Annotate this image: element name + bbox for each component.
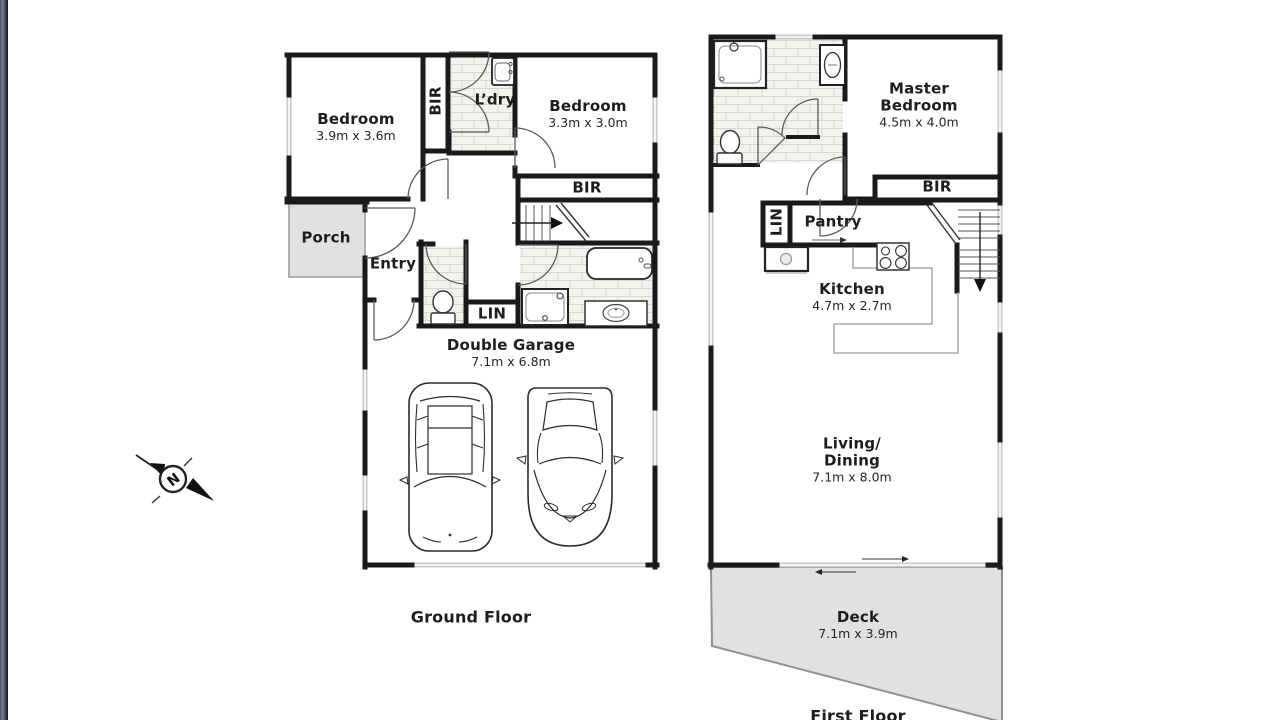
- bathtub-icon: [587, 248, 652, 279]
- bedroom2-name: Bedroom: [548, 98, 627, 115]
- master-bedroom-label: Master Bedroom 4.5m x 4.0m: [879, 81, 958, 130]
- living-size: 7.1m x 8.0m: [812, 470, 891, 485]
- first-bir-label: BIR: [922, 179, 951, 196]
- garage-name: Double Garage: [447, 337, 575, 354]
- entry-label: Entry: [370, 256, 416, 273]
- bedroom2-size: 3.3m x 3.0m: [548, 115, 627, 130]
- bedroom1-size: 3.9m x 3.6m: [316, 128, 395, 143]
- shower-icon-first: [714, 41, 766, 88]
- master-size: 4.5m x 4.0m: [879, 115, 958, 130]
- bedroom2-bir-label: BIR: [572, 180, 601, 197]
- kitchen-label: Kitchen 4.7m x 2.7m: [812, 281, 891, 313]
- porch-label: Porch: [301, 230, 350, 247]
- basin-icon-first: [820, 45, 845, 85]
- laundry-label: L’dry: [475, 92, 516, 109]
- first-floor-title: First Floor: [810, 708, 906, 720]
- first-stairs: [927, 203, 1000, 292]
- bedroom1-label: Bedroom 3.9m x 3.6m: [316, 111, 395, 143]
- vanity-basin-icon-ground: [585, 301, 647, 326]
- deck-label: Deck 7.1m x 3.9m: [818, 609, 897, 641]
- first-linen-label: LIN: [769, 208, 786, 236]
- shower-icon-ground: [522, 289, 568, 325]
- kitchen-name: Kitchen: [812, 281, 891, 298]
- deck-size: 7.1m x 3.9m: [818, 626, 897, 641]
- deck-name: Deck: [818, 609, 897, 626]
- car-top-view-wagon-icon: [400, 383, 500, 551]
- bedroom1-name: Bedroom: [316, 111, 395, 128]
- bedroom2-label: Bedroom 3.3m x 3.0m: [548, 98, 627, 130]
- pantry-label: Pantry: [805, 214, 862, 231]
- master-name-line1: Master: [879, 81, 958, 98]
- ground-floor-title: Ground Floor: [411, 609, 532, 626]
- master-name-line2: Bedroom: [879, 98, 958, 115]
- toilet-icon-ground: [431, 291, 455, 324]
- car-top-view-sedan-icon: [517, 388, 623, 546]
- laundry-tub-icon: [492, 58, 514, 85]
- garage-size: 7.1m x 6.8m: [447, 354, 575, 369]
- deck-area: [711, 567, 1002, 720]
- living-name-line2: Dining: [812, 453, 891, 470]
- garage-label: Double Garage 7.1m x 6.8m: [447, 337, 575, 369]
- ground-linen-label: LIN: [478, 306, 506, 323]
- floor-plan-graphics: N: [0, 0, 1280, 720]
- floor-plan-page: N Bedroom 3.9m x 3.6m BIR L’dry Bedroom …: [0, 0, 1280, 720]
- ground-stairs: [512, 203, 589, 241]
- living-dining-label: Living/ Dining 7.1m x 8.0m: [812, 436, 891, 485]
- living-name-line1: Living/: [812, 436, 891, 453]
- kitchen-size: 4.7m x 2.7m: [812, 298, 891, 313]
- compass-icon: N: [136, 455, 214, 503]
- bedroom1-bir-label: BIR: [428, 86, 445, 115]
